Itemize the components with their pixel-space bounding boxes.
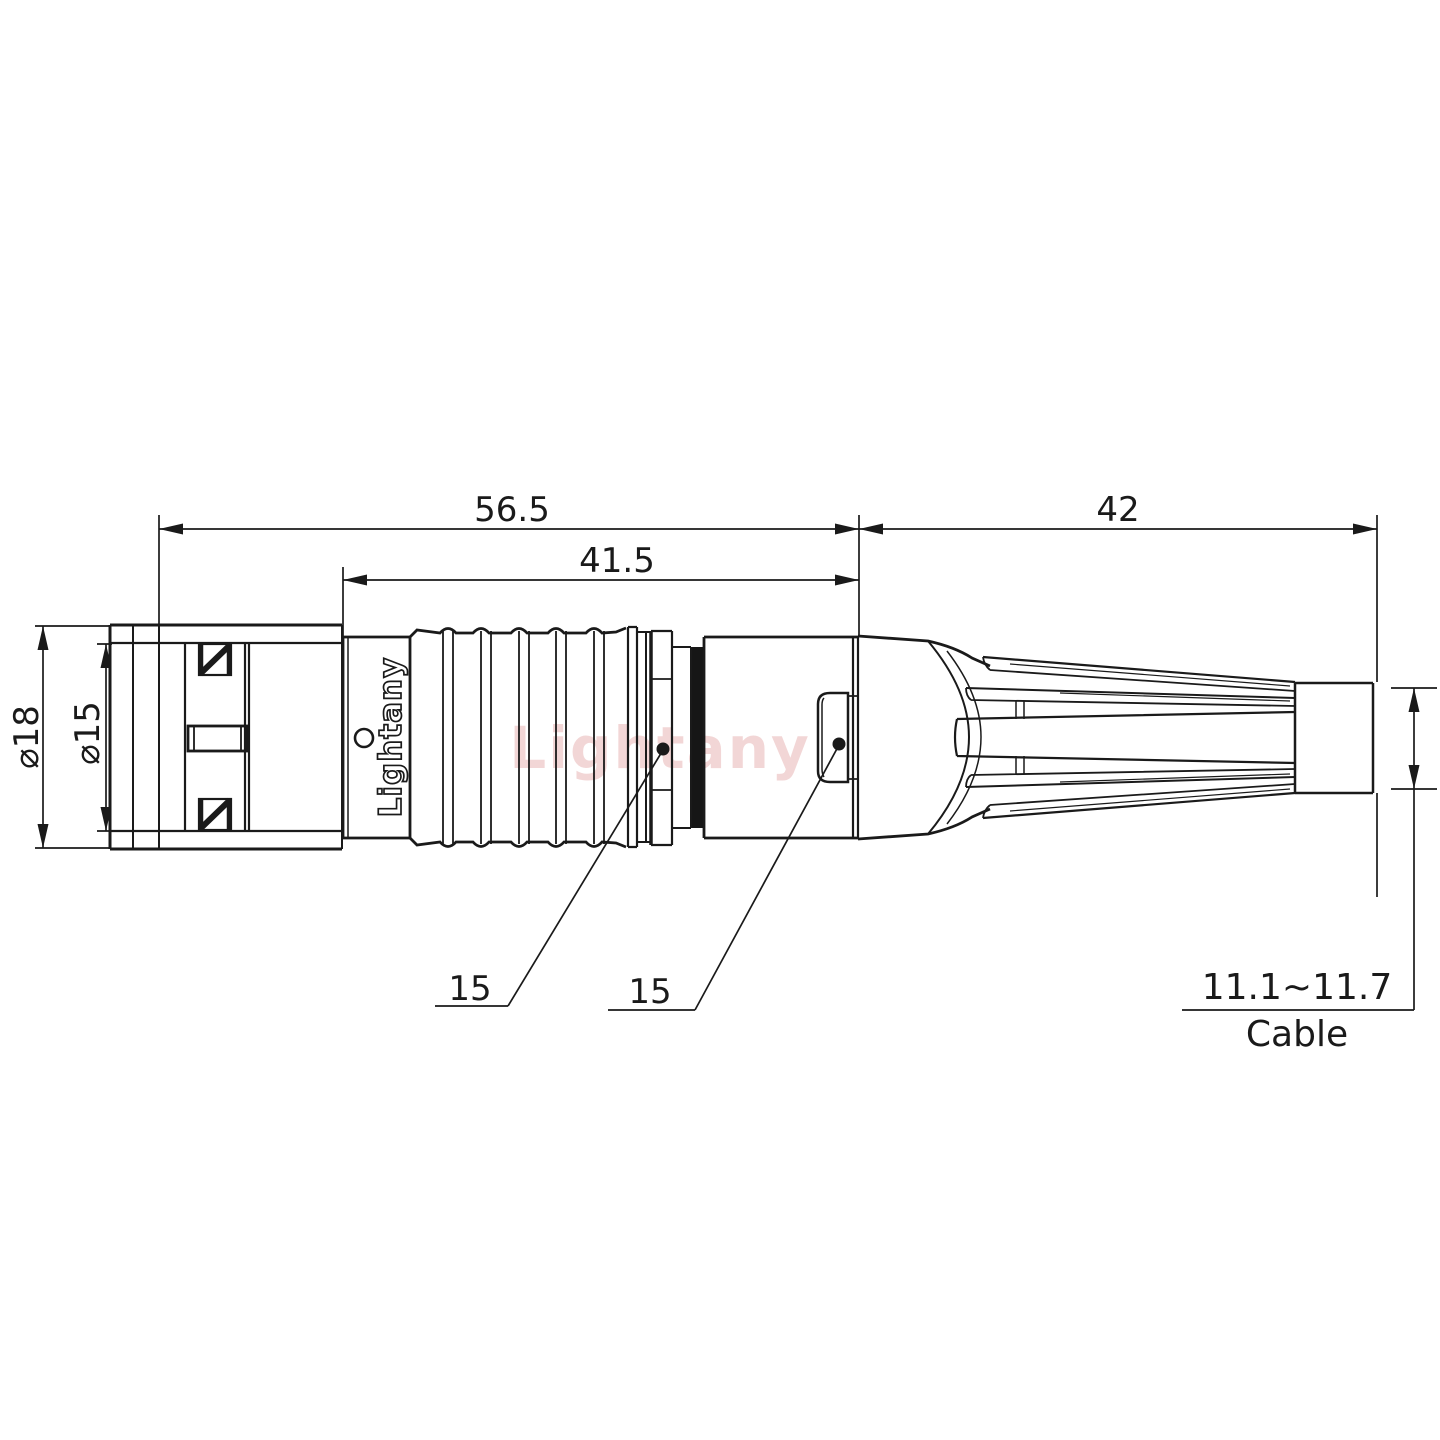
latch-hatch-bottom-diagonal [200,800,230,829]
seal-ring [692,647,704,828]
dim-42-arrow-right-icon [1353,524,1377,535]
dim-18-arrow-up-icon [38,626,49,650]
boot-tie-lines [1016,701,1024,774]
fin-u2-top [966,688,1295,698]
front-shell-section-edges [133,625,342,849]
boot-shoulder-curve-outer [928,641,969,834]
orientation-dot-marker [355,729,373,747]
bend-relief-boot [858,636,1295,839]
dim-front-body-length: 41.5 [343,541,859,637]
dim-56-value: 56.5 [474,490,550,530]
brand-ring: Lightany [343,637,410,838]
latch-hatch-top-diagonal [200,645,230,674]
connector-drawing: Lightany Lightany [0,0,1440,1440]
housing-right-edges [853,637,858,838]
housing-window-inner-arc [822,698,824,777]
front-shell-outline [110,625,342,849]
dim-41-arrow-left-icon [343,575,367,586]
leader-housing-dot-icon [833,738,846,751]
dim-overall-length: 56.5 [159,490,859,637]
latch-block [185,643,249,831]
dim-cable-arrow-up-icon [1409,688,1420,712]
dim-inner-diameter: ⌀15 [68,644,112,831]
leader-housing-line [695,745,839,1010]
boot-core-strip [955,712,1295,763]
technical-drawing-page: Lightany Lightany [0,0,1440,1440]
leader-housing-value: 15 [628,972,671,1012]
dim-18-value: ⌀18 [7,705,47,769]
dim-cable-diameter: 11.1~11.7 Cable [1182,688,1437,1055]
fin-u1-top [983,657,1295,682]
leader-collar-callout: 15 [435,743,670,1010]
leader-collar-line [508,750,663,1006]
fin-l2-bottom [966,777,1295,787]
part-marking-label: Lightany [373,657,409,818]
dim-42-arrow-left-icon [859,524,883,535]
dim-42-value: 42 [1096,490,1139,530]
keyway-slot [188,726,247,751]
boot-shoulder-top [858,636,990,666]
dim-18-arrow-down-icon [38,824,49,848]
keyway-inner-lines [194,726,241,751]
cable-ferrule [1295,683,1373,793]
leader-collar-value: 15 [448,969,491,1009]
dim-15-value: ⌀15 [68,701,108,765]
dim-56-extension-lines [159,515,859,637]
dim-41-value: 41.5 [579,541,655,581]
dim-41-arrow-right-icon [835,575,859,586]
dim-cable-arrow-down-icon [1409,765,1420,789]
dim-56-arrow-left-icon [159,524,183,535]
leader-collar-dot-icon [657,743,670,756]
ferrule-outline [1295,683,1373,793]
cable-word-label: Cable [1246,1014,1348,1055]
dim-cable-range-value: 11.1~11.7 [1202,967,1392,1008]
front-plug-shell [110,625,342,849]
dim-56-arrow-right-icon [835,524,859,535]
boot-shoulder-bottom [858,809,990,839]
fin-l1-bottom [983,793,1295,818]
